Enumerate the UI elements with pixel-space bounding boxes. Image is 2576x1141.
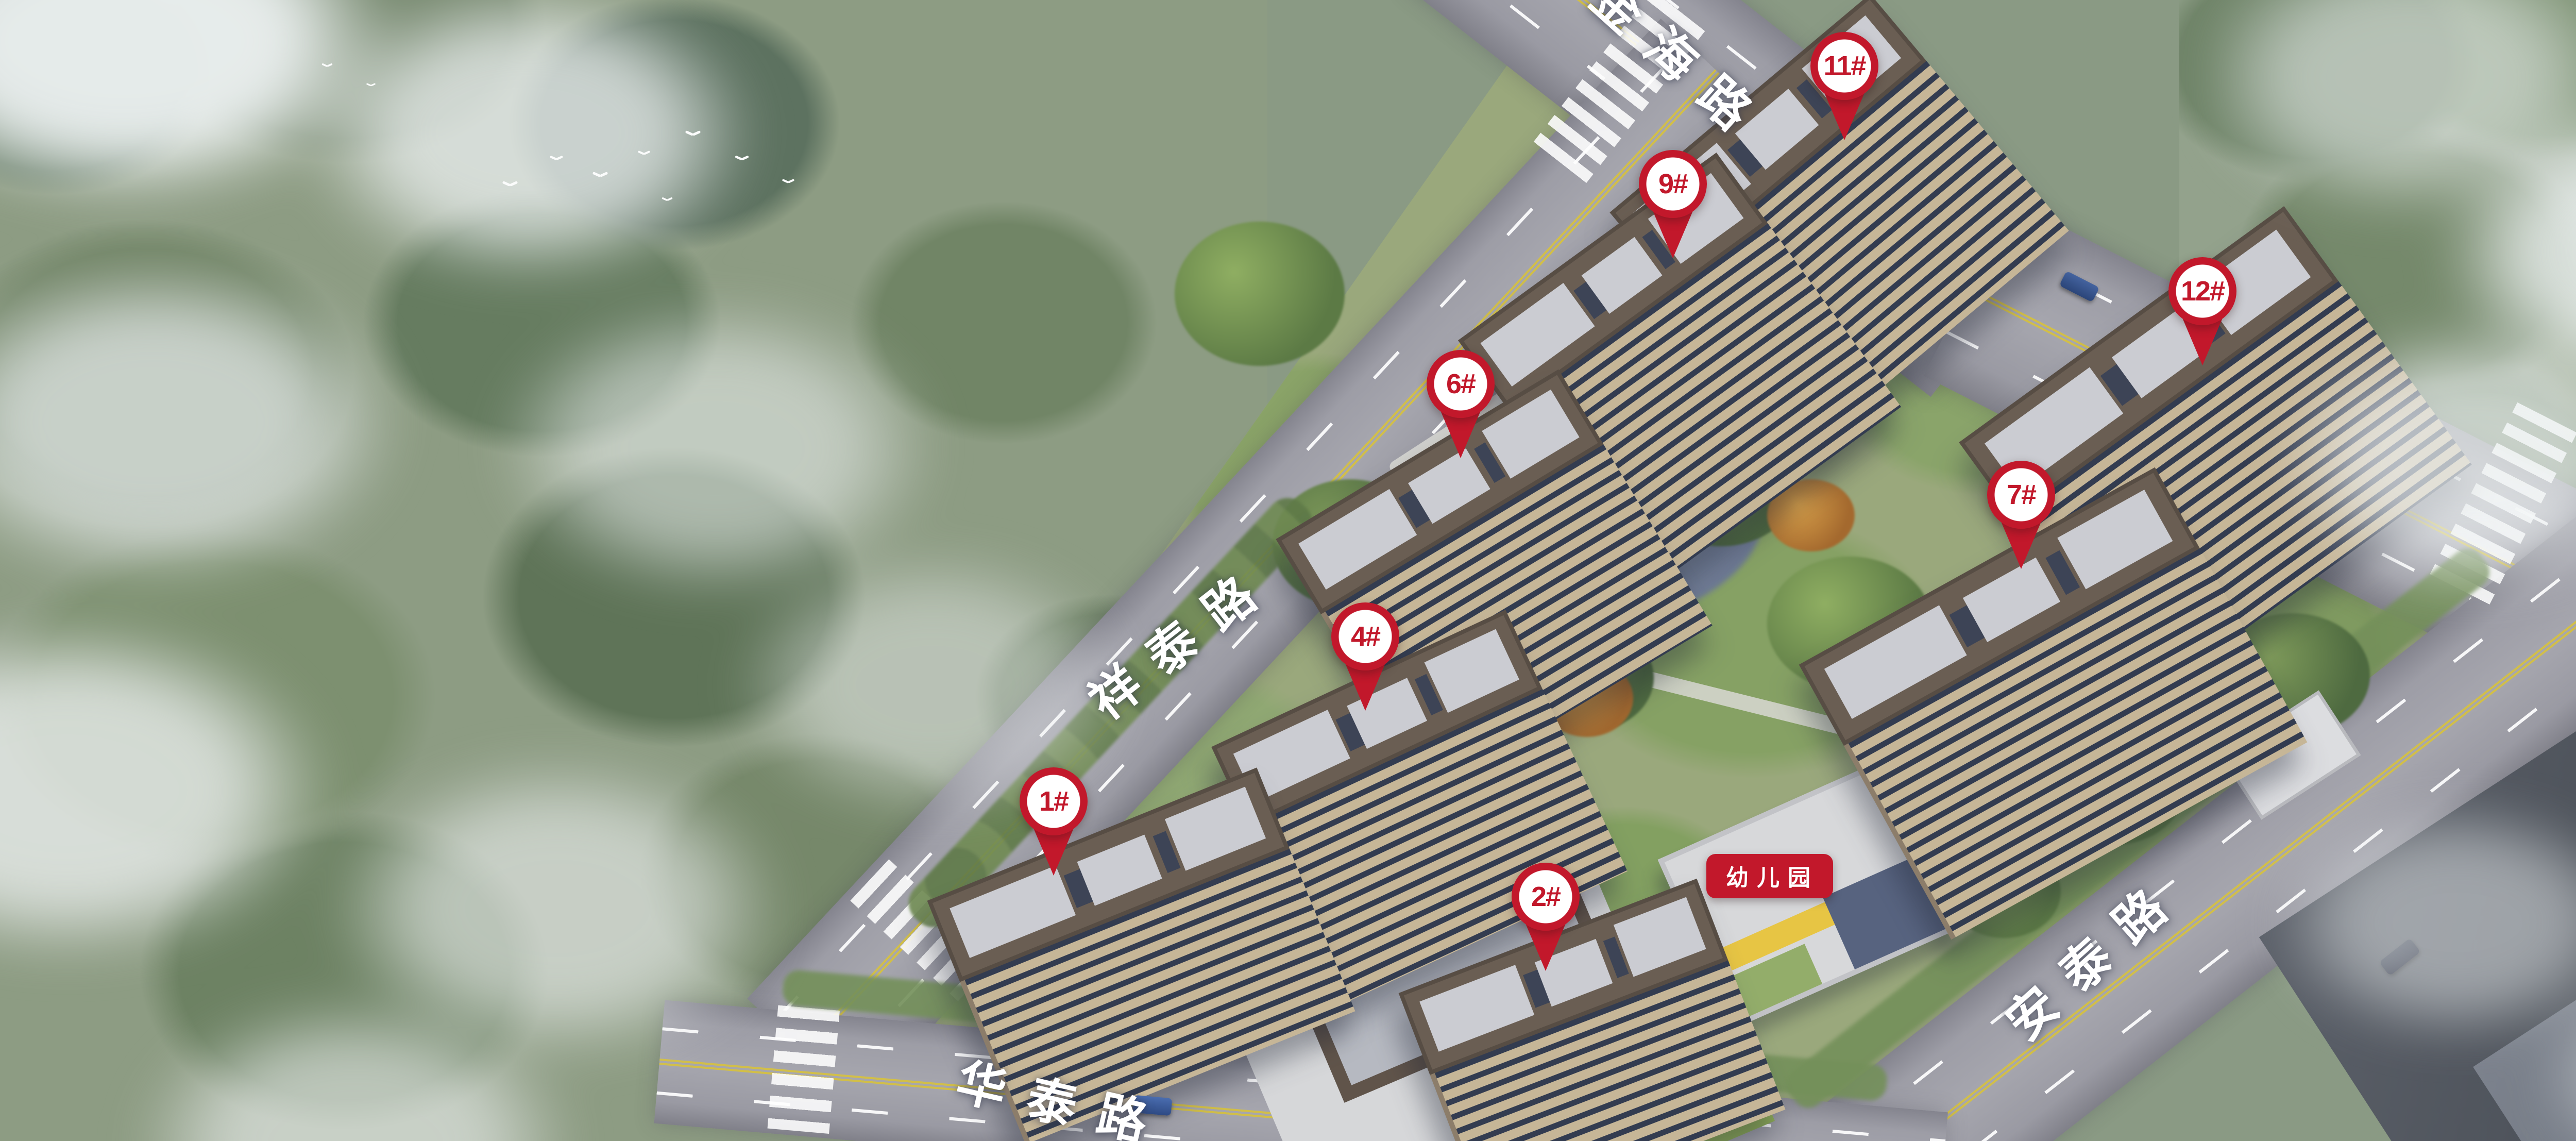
- building-marker-7[interactable]: 7#: [1987, 461, 2055, 570]
- building-marker-12[interactable]: 12#: [2168, 257, 2236, 366]
- bird-icon: [638, 150, 650, 155]
- location-pin-icon: 9#: [1639, 150, 1707, 218]
- bird-icon: [592, 171, 608, 177]
- location-pin-icon: 2#: [1512, 863, 1580, 931]
- location-pin-icon: 11#: [1810, 32, 1878, 100]
- location-pin-icon: 12#: [2168, 257, 2236, 325]
- marker-label: 7#: [2007, 479, 2036, 511]
- bird-icon: [735, 155, 749, 161]
- kindergarten-label[interactable]: 幼儿园: [1706, 854, 1833, 898]
- marker-label: 2#: [1531, 881, 1560, 913]
- building-marker-9[interactable]: 9#: [1639, 150, 1707, 259]
- bird-icon: [322, 63, 333, 67]
- bird-eye-view-rendering: 金海路 祥泰路 安泰路 华泰路 1# 2# 4# 6# 7# 9# 11# 12…: [0, 0, 2576, 1141]
- marker-label: 4#: [1351, 620, 1380, 652]
- tree-cluster: [1175, 222, 1345, 366]
- building-marker-11[interactable]: 11#: [1810, 32, 1878, 141]
- location-pin-icon: 1#: [1020, 767, 1088, 835]
- roof-deck: [1165, 787, 1266, 871]
- bird-icon: [782, 178, 794, 183]
- building-marker-4[interactable]: 4#: [1331, 602, 1399, 712]
- crosswalk: [768, 1005, 840, 1134]
- marker-label: 9#: [1658, 168, 1687, 200]
- location-pin-icon: 6#: [1427, 350, 1495, 418]
- bird-icon: [550, 155, 563, 160]
- location-pin-icon: 7#: [1987, 461, 2055, 529]
- building-marker-2[interactable]: 2#: [1512, 863, 1580, 972]
- marker-label: 6#: [1446, 368, 1475, 400]
- bird-icon: [662, 197, 673, 201]
- marker-label: 1#: [1039, 785, 1068, 817]
- bird-icon: [685, 130, 701, 136]
- building-marker-6[interactable]: 6#: [1427, 350, 1495, 459]
- marker-label: 12#: [2181, 275, 2224, 307]
- building-marker-1[interactable]: 1#: [1020, 767, 1088, 877]
- marker-label: 11#: [1823, 50, 1865, 82]
- location-pin-icon: 4#: [1331, 602, 1399, 670]
- bird-icon: [366, 82, 376, 86]
- roof-deck: [1614, 897, 1706, 977]
- bird-icon: [502, 180, 518, 187]
